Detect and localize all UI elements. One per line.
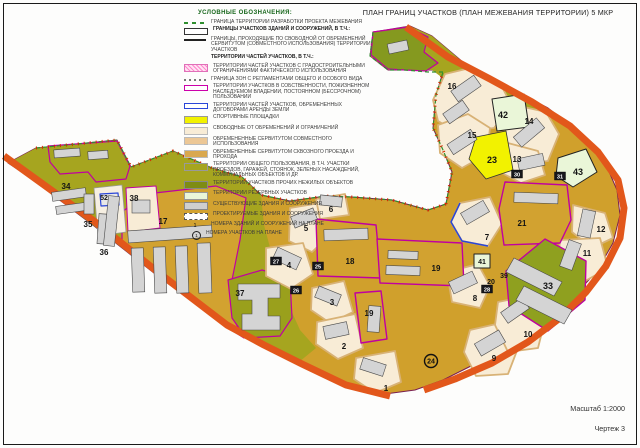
circled-parcel-label: 24 xyxy=(427,359,435,366)
building xyxy=(88,150,109,159)
parcel-label: 14 xyxy=(525,117,534,126)
legend-item: ТЕРРИТОРИИ ЧАСТЕЙ УЧАСТКОВ, В Т.Ч.: xyxy=(184,55,376,62)
parcel-label: 19 xyxy=(365,309,374,318)
legend-item-label: ГРАНИЦЫ, ПРОХОДЯЩИЕ ПО СВОБОДНОЙ ОТ ОБРЕ… xyxy=(211,37,376,53)
parcel-label: 17 xyxy=(159,217,168,226)
legend-item-label: НОМЕРА ЗДАНИЙ И СООРУЖЕНИЙ НА ПЛАНЕ xyxy=(211,222,324,227)
legend-item-label: НОМЕРА УЧАСТКОВ НА ПЛАНЕ xyxy=(206,231,282,236)
parcel-label: 35 xyxy=(84,220,93,229)
legend-swatch-rectdashed-icon xyxy=(184,213,208,220)
building-number-label: 27 xyxy=(273,260,279,266)
parcel-label: 52 xyxy=(100,195,108,202)
legend-swatch-numcirc-icon: 1 xyxy=(192,231,201,240)
parcel-label: 3 xyxy=(330,298,335,307)
legend-item-label: СВОБОДНЫЕ ОТ ОБРЕМЕНЕНИЙ И ОГРАНИЧЕНИЙ xyxy=(213,126,338,131)
parcel-label: 1 xyxy=(384,384,389,393)
parcel-label: 34 xyxy=(62,182,71,191)
legend-item: ПРОЕКТИРУЕМЫЕ ЗДАНИЯ И СООРУЖЕНИЯ xyxy=(184,212,376,220)
building xyxy=(131,248,145,292)
legend-item-label: ГРАНИЦА ТЕРРИТОРИИ РАЗРАБОТКИ ПРОЕКТА МЕ… xyxy=(211,20,362,25)
building-number-label: 31 xyxy=(557,175,563,181)
legend-swatch-fdolive-icon xyxy=(184,181,208,189)
legend-item-label: ТЕРРИТОРИИ УЧАСТКОВ ПРОЧИХ НЕЖИЛЫХ ОБЪЕК… xyxy=(213,181,353,186)
legend-swatch-none-icon xyxy=(184,56,206,62)
parcel-label: 36 xyxy=(100,248,109,257)
legend-swatch-linesolid-icon xyxy=(184,39,206,41)
legend-swatch-ftan2-icon xyxy=(184,150,208,158)
legend-swatch-fpgreen-icon xyxy=(184,192,208,200)
parcel-label: 7 xyxy=(485,233,490,242)
building xyxy=(175,246,189,293)
legend-item-label: ГРАНИЦЫ УЧАСТКОВ ЗДАНИЙ И СООРУЖЕНИЙ, В … xyxy=(213,27,350,32)
parcel-label: 2 xyxy=(342,342,347,351)
legend-swatch-rectoutline-icon xyxy=(184,28,208,35)
parcel-label: 38 xyxy=(130,194,139,203)
legend-item-label: ОБРЕМЕНЕННЫЕ СЕРВИТУТОМ СКВОЗНОГО ПРОЕЗД… xyxy=(213,150,376,161)
parcel-label: 33 xyxy=(543,281,553,291)
building-number-label: 25 xyxy=(315,265,321,271)
parcel-label: 39 xyxy=(500,273,508,280)
building-number-label: 26 xyxy=(293,289,299,295)
legend-item-label: ГРАНИЦА ЗОН С РЕГЛАМЕНТАМИ ОБЩЕГО И ОСОБ… xyxy=(211,77,362,82)
parcel-label: 11 xyxy=(583,249,592,258)
legend-item: СУЩЕСТВУЮЩИЕ ЗДАНИЯ И СООРУЖЕНИЯ xyxy=(184,202,376,211)
legend-item: ТЕРРИТОРИИ ЧАСТЕЙ УЧАСТКОВ С ГРАДОСТРОИТ… xyxy=(184,64,376,75)
legend-swatch-rectmagenta-icon xyxy=(184,85,208,91)
legend-swatch-dashgreen-icon xyxy=(184,22,206,24)
legend-item: ГРАНИЦЫ УЧАСТКОВ ЗДАНИЙ И СООРУЖЕНИЙ, В … xyxy=(184,27,376,35)
legend-item: ГРАНИЦА ЗОН С РЕГЛАМЕНТАМИ ОБЩЕГО И ОСОБ… xyxy=(184,77,376,82)
parcel-19a xyxy=(377,239,464,286)
building xyxy=(84,194,94,214)
parcel-label: 19 xyxy=(432,264,441,273)
building xyxy=(197,243,212,293)
parcel-label: 8 xyxy=(473,294,478,303)
legend-item: ТЕРРИТОРИИ УЧАСТКОВ В СОБСТВЕННОСТИ, ПОЖ… xyxy=(184,84,376,100)
legend-item: ТЕРРИТОРИИ ОБЩЕГО ПОЛЬЗОВАНИЯ, В Т.Ч. УЧ… xyxy=(184,162,376,178)
legend-items: ГРАНИЦА ТЕРРИТОРИИ РАЗРАБОТКИ ПРОЕКТА МЕ… xyxy=(184,20,376,240)
legend-item: ТЕРРИТОРИИ УЧАСТКОВ ПРОЧИХ НЕЖИЛЫХ ОБЪЕК… xyxy=(184,181,376,190)
legend-swatch-fgray-icon xyxy=(184,202,208,210)
legend-item: ТЕРРИТОРИИ РЕЗЕРВНЫХ УЧАСТКОВ xyxy=(184,191,376,200)
parcel-label: 13 xyxy=(513,155,522,164)
building xyxy=(388,250,418,259)
legend-item: ОБРЕМЕНЕННЫЕ СЕРВИТУТОМ СКВОЗНОГО ПРОЕЗД… xyxy=(184,150,376,161)
parcel-label: 16 xyxy=(448,82,457,91)
legend-item-label: ТЕРРИТОРИИ ЧАСТЕЙ УЧАСТКОВ, ОБРЕМЕНЕННЫХ… xyxy=(213,103,376,114)
legend-item-label: СУЩЕСТВУЮЩИЕ ЗДАНИЯ И СООРУЖЕНИЯ xyxy=(213,202,322,207)
legend-item-label: ОБРЕМЕНЕННЫЕ СЕРВИТУТОМ СОВМЕСТНОГО ИСПО… xyxy=(213,137,376,148)
legend-item-label: ТЕРРИТОРИИ РЕЗЕРВНЫХ УЧАСТКОВ xyxy=(213,191,307,196)
parcel-label: 21 xyxy=(518,219,527,228)
legend-item-label: СПОРТИВНЫЕ ПЛОЩАДКИ xyxy=(213,115,279,120)
legend-swatch-hatchpink-icon xyxy=(184,64,208,72)
parcel-label: 43 xyxy=(573,167,583,177)
parcel-label: 12 xyxy=(597,225,606,234)
parcel-label: 9 xyxy=(492,354,497,363)
legend-swatch-dashshort-icon xyxy=(184,79,206,81)
map-scale-note: Масштаб 1:2000 xyxy=(470,404,625,413)
legend-item: ОБРЕМЕНЕННЫЕ СЕРВИТУТОМ СОВМЕСТНОГО ИСПО… xyxy=(184,137,376,148)
building xyxy=(386,265,420,275)
parcel-label: 10 xyxy=(524,330,533,339)
building-number-label: 28 xyxy=(484,288,490,294)
legend-item: 1НОМЕРА УЧАСТКОВ НА ПЛАНЕ xyxy=(184,231,376,241)
legend-item: ГРАНИЦА ТЕРРИТОРИИ РАЗРАБОТКИ ПРОЕКТА МЕ… xyxy=(184,20,376,25)
legend-item: СВОБОДНЫЕ ОТ ОБРЕМЕНЕНИЙ И ОГРАНИЧЕНИЙ xyxy=(184,126,376,135)
legend-item: ГРАНИЦЫ, ПРОХОДЯЩИЕ ПО СВОБОДНОЙ ОТ ОБРЕ… xyxy=(184,37,376,53)
legend-swatch-folive-icon xyxy=(184,163,208,171)
legend-swatch-ftan-icon xyxy=(184,137,208,145)
legend-swatch-fyellow-icon xyxy=(184,116,208,124)
parcel-label: 23 xyxy=(487,155,497,165)
legend-item-label: ТЕРРИТОРИИ ЧАСТЕЙ УЧАСТКОВ С ГРАДОСТРОИТ… xyxy=(213,64,376,75)
legend-item-label: ТЕРРИТОРИИ ОБЩЕГО ПОЛЬЗОВАНИЯ, В Т.Ч. УЧ… xyxy=(213,162,376,178)
legend-swatch-rectblue-icon xyxy=(184,103,208,109)
building xyxy=(153,247,167,293)
parcel-label: 4 xyxy=(287,261,292,270)
legend-item-label: ПРОЕКТИРУЕМЫЕ ЗДАНИЯ И СООРУЖЕНИЯ xyxy=(213,212,323,217)
parcel-21 xyxy=(499,182,571,245)
building xyxy=(514,192,558,204)
page-title: ПЛАН ГРАНИЦ УЧАСТКОВ (ПЛАН МЕЖЕВАНИЯ ТЕР… xyxy=(352,8,624,17)
sheet-number: Чертеж 3 xyxy=(470,424,625,433)
parcel-label: 37 xyxy=(236,289,245,298)
parcel-label: 41 xyxy=(478,259,486,266)
legend-item: 1НОМЕРА ЗДАНИЙ И СООРУЖЕНИЙ НА ПЛАНЕ xyxy=(184,222,376,229)
legend-item-label: ТЕРРИТОРИИ УЧАСТКОВ В СОБСТВЕННОСТИ, ПОЖ… xyxy=(213,84,376,100)
legend-swatch-num-icon: 1 xyxy=(184,223,206,229)
legend-swatch-fcream-icon xyxy=(184,127,208,135)
legend-item: ТЕРРИТОРИИ ЧАСТЕЙ УЧАСТКОВ, ОБРЕМЕНЕННЫХ… xyxy=(184,103,376,114)
parcel-label: 42 xyxy=(498,110,508,120)
legend-item-label: ТЕРРИТОРИИ ЧАСТЕЙ УЧАСТКОВ, В Т.Ч.: xyxy=(211,55,314,60)
building-number-label: 30 xyxy=(514,173,520,179)
legend-header: УСЛОВНЫЕ ОБОЗНАЧЕНИЯ: xyxy=(198,10,376,16)
legend-item: СПОРТИВНЫЕ ПЛОЩАДКИ xyxy=(184,115,376,124)
legend: УСЛОВНЫЕ ОБОЗНАЧЕНИЯ: ГРАНИЦА ТЕРРИТОРИИ… xyxy=(184,10,376,242)
parcel-label: 15 xyxy=(468,131,477,140)
building xyxy=(54,148,80,158)
parcel-label: 18 xyxy=(346,257,355,266)
